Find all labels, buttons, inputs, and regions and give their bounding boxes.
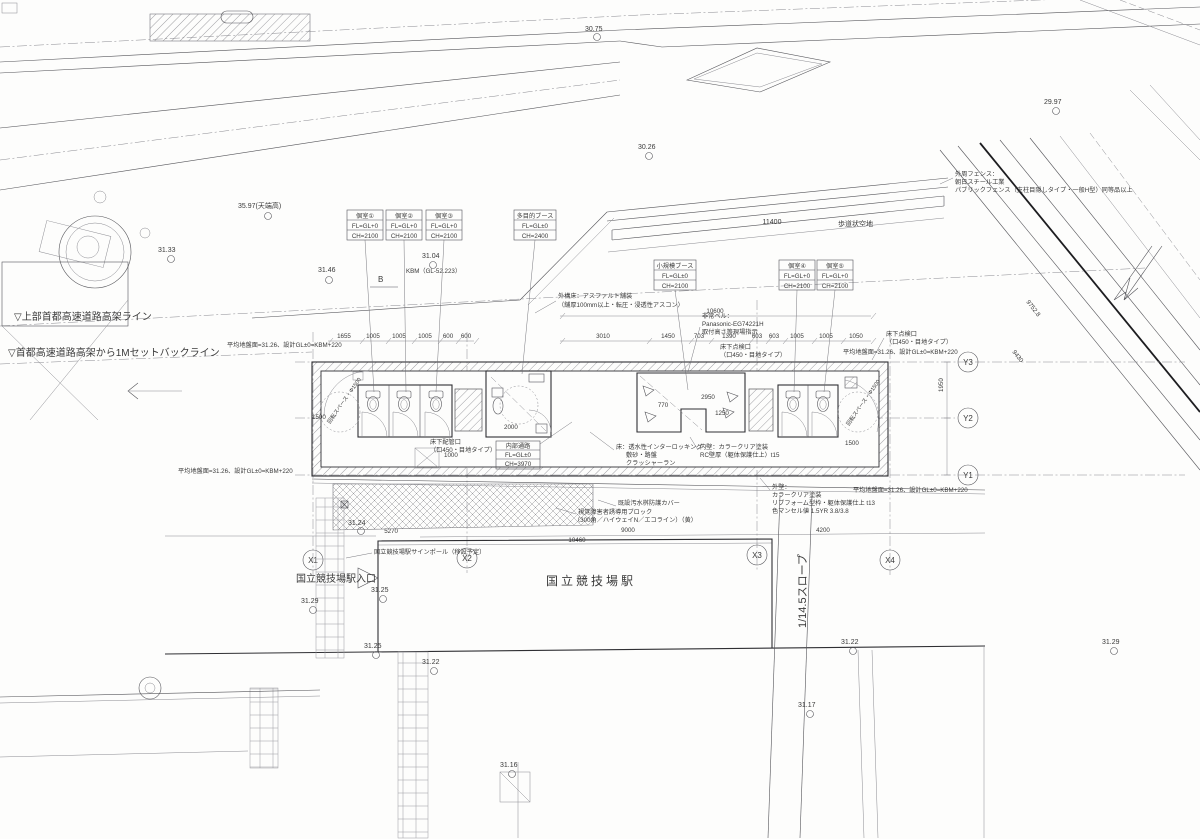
grid-y2: Y2: [963, 414, 973, 423]
spot: 31.29: [301, 598, 319, 605]
skylight-outline: [687, 48, 830, 92]
setback-upper-label: ▽上部首都高速道路高架ライン: [14, 310, 152, 323]
interior-dim: 770: [658, 402, 669, 409]
callout-multipurpose: 多目的ブース FL=GL±0 CH=2400: [514, 210, 556, 374]
grid-y1: Y1: [963, 471, 973, 480]
callout-fl: FL=GL+0: [822, 273, 849, 280]
interior-dim: 1250: [715, 410, 729, 417]
callout-fl: FL=GL+0: [352, 223, 379, 230]
dim: 1005: [819, 333, 833, 340]
expressway-diagonals: 9752.8 9430: [940, 85, 1200, 470]
interior-dim: 1500: [845, 440, 859, 447]
cover-note: 既設汚水桝防護カバー: [618, 499, 680, 507]
callout-fl: FL=GL±0: [522, 223, 548, 230]
shaft-hatch: [455, 389, 482, 431]
avg-ground-note: 平均地盤面=31.26、設計GL±0=KBM+220: [227, 341, 342, 349]
spot: 31.22: [841, 639, 859, 646]
slope-label: 1/14.5スロープ: [796, 554, 809, 628]
sign-pole-note: 国立競技場駅サインポール（移設予定）: [374, 548, 485, 556]
dim: 1005: [366, 333, 380, 340]
site-plan-sheet: 9752.8 9430 歩道状空地 11400 ▽上部首都高速道路高架ライン ▽…: [0, 0, 1200, 839]
dim: 603: [769, 333, 780, 340]
callout-ch: CH=2100: [391, 233, 418, 240]
callout-ch: CH=2100: [352, 233, 379, 240]
spot: 31.04: [422, 253, 440, 260]
floor-note: 床：透水性インターロッキング: [616, 443, 702, 451]
callout-title: 個室③: [435, 212, 453, 220]
inner-wall-note: RC壁厚（躯体保護仕上）t15: [700, 451, 780, 459]
spot: 30.26: [638, 144, 656, 151]
callout-fl: FL=GL+0: [784, 273, 811, 280]
callout-ch: CH=2100: [431, 233, 458, 240]
diagonal-dim: 9752.8: [1024, 299, 1042, 319]
spot: 29.97: [1044, 99, 1062, 106]
tactile-note: （300角／ハイウェイN／エコライン）（黄）: [574, 516, 697, 524]
callout-title: 個室⑤: [826, 262, 844, 270]
avg-ground-note: 平均地盤面=31.26、設計GL±0=KBM+220: [843, 348, 958, 356]
outer-wall-note: 色マンセル値 1.5YR 3.8/3.8: [772, 507, 849, 515]
fence-note: 朝日スチール工業: [955, 178, 1005, 186]
interior-dim: 2950: [701, 394, 715, 401]
kbm-note: KBM（GL-52.223）: [406, 268, 461, 275]
top-road: [0, 0, 1200, 73]
fence-note: 外周フェンス：: [955, 170, 998, 178]
tactile-note: 視覚障害者誘導用ブロック: [578, 508, 652, 516]
floor-note: 敷砂・路盤: [626, 451, 657, 459]
interior-dim: 2000: [504, 424, 518, 431]
outer-wall-note: リブフォーム型枠・躯体保護仕上 t13: [772, 499, 876, 507]
toilet-building: 770 2950 1250 回転スペース・Φ1500 回転スペース・Φ1500 …: [312, 362, 888, 476]
callout-title: 内部通路: [506, 442, 532, 450]
grid-x4: X4: [885, 556, 895, 565]
spot: 31.17: [798, 702, 816, 709]
ramp: 1/14.5スロープ: [768, 495, 984, 838]
callout-ch: CH=2100: [822, 283, 849, 290]
station-entrance-label: 国立競技場駅入口: [296, 572, 376, 585]
spot: 31.16: [500, 762, 518, 769]
pavement-note: （舗厚100mm以上・転圧・浸透性アスコン）: [558, 301, 684, 309]
station-structure: 国立競技場駅入口 国立競技場駅 国立競技場駅サインポール（移設予定）: [165, 498, 985, 838]
spot: 30.75: [585, 26, 603, 33]
dim: 600: [443, 333, 454, 340]
dim: 1005: [790, 333, 804, 340]
walkway-label: 歩道状空地: [838, 219, 873, 228]
grid-y3: Y3: [963, 358, 973, 367]
inner-wall-note: 内壁：カラークリア塗装: [700, 443, 768, 451]
callout-title: 小規模ブース: [657, 262, 694, 270]
bell-note: 非常ベル：: [702, 312, 733, 320]
spot: 31.33: [158, 247, 176, 254]
callout-title: 多目的ブース: [517, 212, 554, 220]
pavement-note: 外構床：アスファルト舗装: [558, 292, 632, 300]
bell-note: 取付高さ等現場指示: [702, 328, 758, 336]
section-mark-b: B: [378, 275, 383, 284]
dim: 1005: [392, 333, 406, 340]
hatch-access-note: （口450・目地タイプ）: [886, 338, 952, 346]
grid-x3: X3: [752, 551, 762, 560]
pipe-access-note: 床下配管口: [430, 438, 461, 446]
site-plan-drawing: 9752.8 9430 歩道状空地 11400 ▽上部首都高速道路高架ライン ▽…: [0, 0, 1200, 839]
avg-ground-note: 平均地盤面=31.26、設計GL±0=KBM+220: [853, 486, 968, 494]
spot: 31.22: [422, 659, 440, 666]
hatch-access-note: 床下点検口: [720, 343, 751, 351]
dim: 600: [461, 333, 472, 340]
spot: 31.24: [348, 520, 366, 527]
callout-ch: CH=3970: [505, 461, 532, 468]
outer-wall-note: 外壁：: [772, 483, 791, 491]
callout-fl: FL=GL±0: [662, 273, 688, 280]
dim: 3010: [596, 333, 610, 340]
dim: 1005: [418, 333, 432, 340]
callout-fl: FL=GL±0: [505, 452, 531, 459]
callout-title: 個室①: [356, 212, 374, 220]
callout-ch: CH=2100: [662, 283, 689, 290]
spot: 31.25: [371, 587, 389, 594]
callout-title: 個室④: [788, 262, 806, 270]
spot: 31.29: [1102, 639, 1120, 646]
shaft-hatch: [749, 389, 773, 431]
crosswalk-hatch: [150, 14, 310, 41]
hatch-access-note: （口450・目地タイプ）: [720, 351, 786, 359]
callout-ch: CH=2100: [784, 283, 811, 290]
strip-dim: 11400: [763, 219, 782, 226]
callout-fl: FL=GL+0: [391, 223, 418, 230]
callout-title: 個室②: [395, 212, 413, 220]
bell-note: Panasonic-EG74221H: [702, 321, 764, 328]
dim: 9000: [621, 527, 635, 534]
spot: 35.97(天端高): [238, 201, 281, 210]
interior-dim: 1500: [312, 414, 326, 421]
callout-fl: FL=GL+0: [431, 223, 458, 230]
dim: 4200: [816, 527, 830, 534]
outer-wall-note: カラークリア塗装: [772, 491, 822, 499]
hatch-access-note: 床下点検口: [886, 330, 917, 338]
spot: 31.25: [364, 643, 382, 650]
dim: 1050: [849, 333, 863, 340]
pipe-access-note: （口450・目地タイプ）: [430, 446, 496, 454]
fence-note: パブリックフェンス（支柱目隠しタイプ・一般H型）同等品以上: [955, 186, 1133, 194]
avg-ground-note: 平均地盤面=31.26、設計GL±0=KBM+220: [178, 467, 293, 475]
dim: 1450: [661, 333, 675, 340]
dim: 1950: [938, 378, 945, 392]
spot: 31.46: [318, 267, 336, 274]
tactile-paving: [333, 484, 593, 530]
callout-ch: CH=2400: [522, 233, 549, 240]
station-label: 国立競技場駅: [546, 573, 636, 588]
dim: 1655: [337, 333, 351, 340]
setback-lower-label: ▽首都高速道路高架から1Mセットバックライン: [8, 346, 220, 359]
floor-note: クラッシャーラン: [626, 460, 676, 467]
secondary-road: [0, 48, 830, 238]
